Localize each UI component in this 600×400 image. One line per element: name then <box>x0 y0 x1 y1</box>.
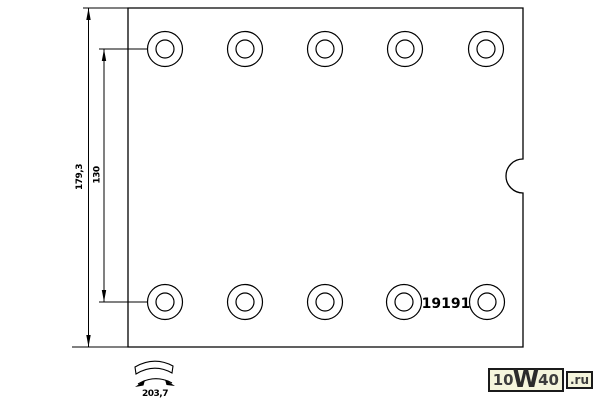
brake-lining-drawing-page: 179,3 130 203,7 19191 10W40 .ru <box>0 0 600 400</box>
rivet-hole <box>148 285 183 320</box>
rivet-hole <box>470 285 505 320</box>
watermark-brand-box: 10W40 <box>488 368 564 392</box>
rivet-hole <box>388 32 423 67</box>
technical-drawing: 179,3 130 203,7 19191 <box>0 0 600 400</box>
rivet-hole <box>308 32 343 67</box>
rivet-hole <box>228 32 263 67</box>
dim-hole-span-label: 130 <box>93 166 103 184</box>
dimension-line-hole-span: 130 <box>93 49 107 302</box>
arrowhead-down <box>86 335 90 347</box>
watermark-w: W <box>513 370 539 389</box>
part-number-label: 19191 <box>422 296 471 312</box>
dim-arc-width-label: 203,7 <box>142 389 168 399</box>
watermark-suffix: 40 <box>538 373 559 388</box>
dim-height-label: 179,3 <box>75 164 85 190</box>
watermark-prefix: 10 <box>493 373 514 388</box>
rivet-hole <box>469 32 504 67</box>
watermark-tld-box: .ru <box>566 371 593 389</box>
arc-width-symbol: 203,7 <box>135 361 175 399</box>
arrowhead-up <box>102 49 106 61</box>
arrowhead-down <box>102 290 106 302</box>
rivet-hole <box>308 285 343 320</box>
watermark-logo: 10W40 .ru <box>488 368 593 392</box>
rivet-hole <box>228 285 263 320</box>
rivet-hole <box>148 32 183 67</box>
arrowhead-up <box>86 8 90 20</box>
dimension-line-height: 179,3 <box>75 8 91 347</box>
arc-segment-glyph <box>135 361 173 374</box>
rivet-hole <box>387 285 422 320</box>
arrowhead-right <box>165 380 175 387</box>
